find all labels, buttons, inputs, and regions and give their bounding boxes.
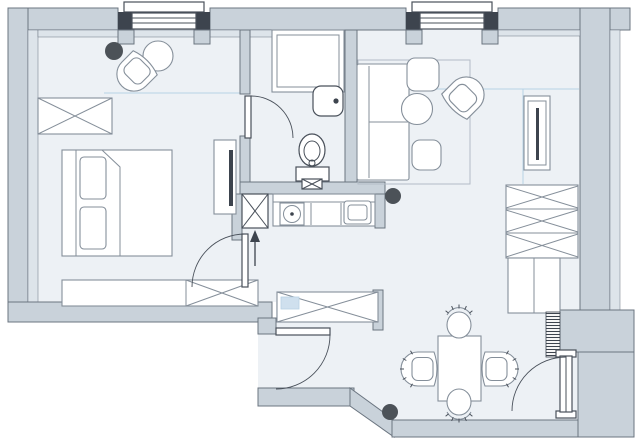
plant-dot-hall — [385, 188, 401, 204]
window-pier — [194, 30, 210, 44]
wall-topright-inner-band — [498, 30, 580, 36]
wall-left-inner-band — [28, 30, 38, 302]
tv-stand — [214, 140, 236, 214]
basin-faucet — [333, 98, 338, 103]
pouf — [412, 140, 441, 170]
window-frame — [420, 13, 484, 29]
zigzag-wardrobe — [506, 185, 578, 258]
wall-bathroom-left-upper — [240, 30, 250, 94]
window-jamb — [406, 12, 420, 30]
door-leaf — [245, 96, 251, 138]
door-leaf — [276, 328, 330, 335]
low-dresser — [62, 280, 258, 306]
sink-drain — [290, 212, 294, 216]
wall-kitchen-right-stub — [375, 194, 385, 228]
wall-left — [8, 8, 28, 322]
bed-frame — [62, 150, 172, 256]
window-sill — [412, 2, 492, 12]
closet-blue-box — [281, 297, 299, 309]
wall-entry-right-block — [578, 352, 634, 437]
floor-plan — [0, 0, 640, 439]
window-jamb — [118, 12, 132, 30]
wall-right-outer-band — [610, 30, 620, 310]
wall-entry-header — [556, 310, 634, 352]
window-pier — [482, 30, 498, 44]
window-pier — [118, 30, 134, 44]
wall-bathroom-right — [345, 30, 357, 194]
kitchen-counter — [273, 194, 375, 226]
wall-top-middle — [210, 8, 406, 30]
double-bed — [62, 150, 172, 256]
ventilation-shaft — [242, 194, 268, 228]
sofa — [357, 64, 409, 180]
hall-closet — [277, 292, 378, 322]
pillow — [80, 157, 106, 199]
tv-console — [524, 96, 550, 170]
wall-hall-bottom — [258, 388, 354, 406]
window-pier — [406, 30, 422, 44]
window-jamb — [196, 12, 210, 30]
dresser-body — [62, 280, 258, 306]
washbasin — [313, 86, 343, 116]
wall-bathroom-left-lower — [240, 136, 250, 186]
floor-plan-canvas — [0, 0, 640, 439]
door-leaf — [242, 234, 248, 287]
wall-hall-left-stub — [258, 318, 276, 334]
side-cabinet — [508, 258, 560, 313]
tv — [536, 108, 539, 160]
tv — [229, 150, 233, 206]
toilet-vent-hatch — [302, 179, 322, 189]
plant-dot-bedroom — [105, 42, 123, 60]
window-sill — [124, 2, 204, 12]
window-frame — [132, 13, 196, 29]
pouf — [407, 58, 439, 91]
window-jamb — [484, 12, 498, 30]
plant-dot-dining — [382, 404, 398, 420]
coffee-table — [402, 94, 433, 125]
shower — [272, 30, 344, 92]
pillow — [80, 207, 106, 249]
wall-right — [580, 8, 610, 312]
